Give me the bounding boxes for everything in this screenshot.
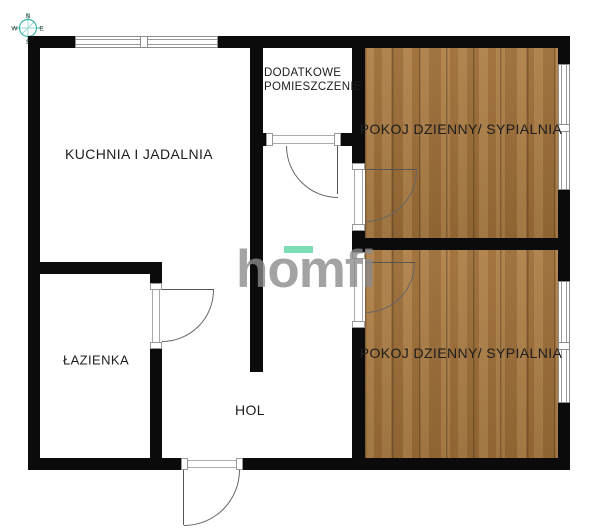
wall-outer-bottom: [28, 458, 570, 470]
homfi-logo-accent-bar: [284, 246, 313, 253]
room-label-additional-line2: POMIESZCZENIE: [264, 80, 362, 94]
door-jamb: [150, 342, 162, 349]
room-label-bathroom: ŁAZIENKA: [63, 353, 129, 368]
homfi-watermark: homfi: [236, 238, 375, 302]
door-frame-lines: [354, 166, 363, 228]
compass-west-label: W: [11, 26, 18, 33]
door-jamb: [352, 163, 365, 170]
room-label-living-top: POKOJ DZIENNY/ SYPIALNIA: [360, 121, 563, 137]
door-frame-lines: [152, 286, 160, 346]
floor-plan-canvas: N W E S: [0, 0, 614, 532]
door-opening-bathroom: [150, 286, 162, 346]
window-mullion: [140, 36, 148, 48]
compass-north-label: N: [26, 13, 31, 20]
door-jamb: [266, 133, 273, 146]
room-label-kitchen: KUCHNIA I JADALNIA: [65, 146, 213, 162]
door-jamb: [181, 458, 188, 470]
door-opening-additional-room: [272, 133, 335, 146]
compass-east-label: E: [39, 26, 44, 33]
door-jamb: [352, 321, 365, 328]
door-swing-arc-additional-room: [286, 146, 338, 198]
door-opening-entrance: [181, 458, 243, 470]
room-label-additional: DODATKOWE POMIESZCZENIE: [264, 66, 362, 94]
door-swing-arc-bathroom: [162, 290, 214, 342]
room-label-living-bottom: POKOJ DZIENNY/ SYPIALNIA: [360, 345, 563, 361]
door-swing-arc-entrance: [184, 470, 240, 526]
door-opening-living-top: [352, 166, 365, 228]
wall-living-rooms-divider: [352, 238, 570, 250]
wall-kitchen-corridor: [250, 36, 263, 372]
wall-outer-left: [28, 36, 40, 470]
room-label-additional-line1: DODATKOWE: [264, 66, 362, 80]
room-label-hall: HOL: [235, 402, 265, 418]
door-jamb: [334, 133, 341, 146]
wall-bathroom-top: [28, 262, 162, 274]
door-frame-lines: [272, 135, 335, 144]
door-jamb: [352, 224, 365, 231]
door-frame-lines: [181, 460, 243, 468]
door-jamb: [150, 283, 162, 290]
door-jamb: [236, 458, 243, 470]
